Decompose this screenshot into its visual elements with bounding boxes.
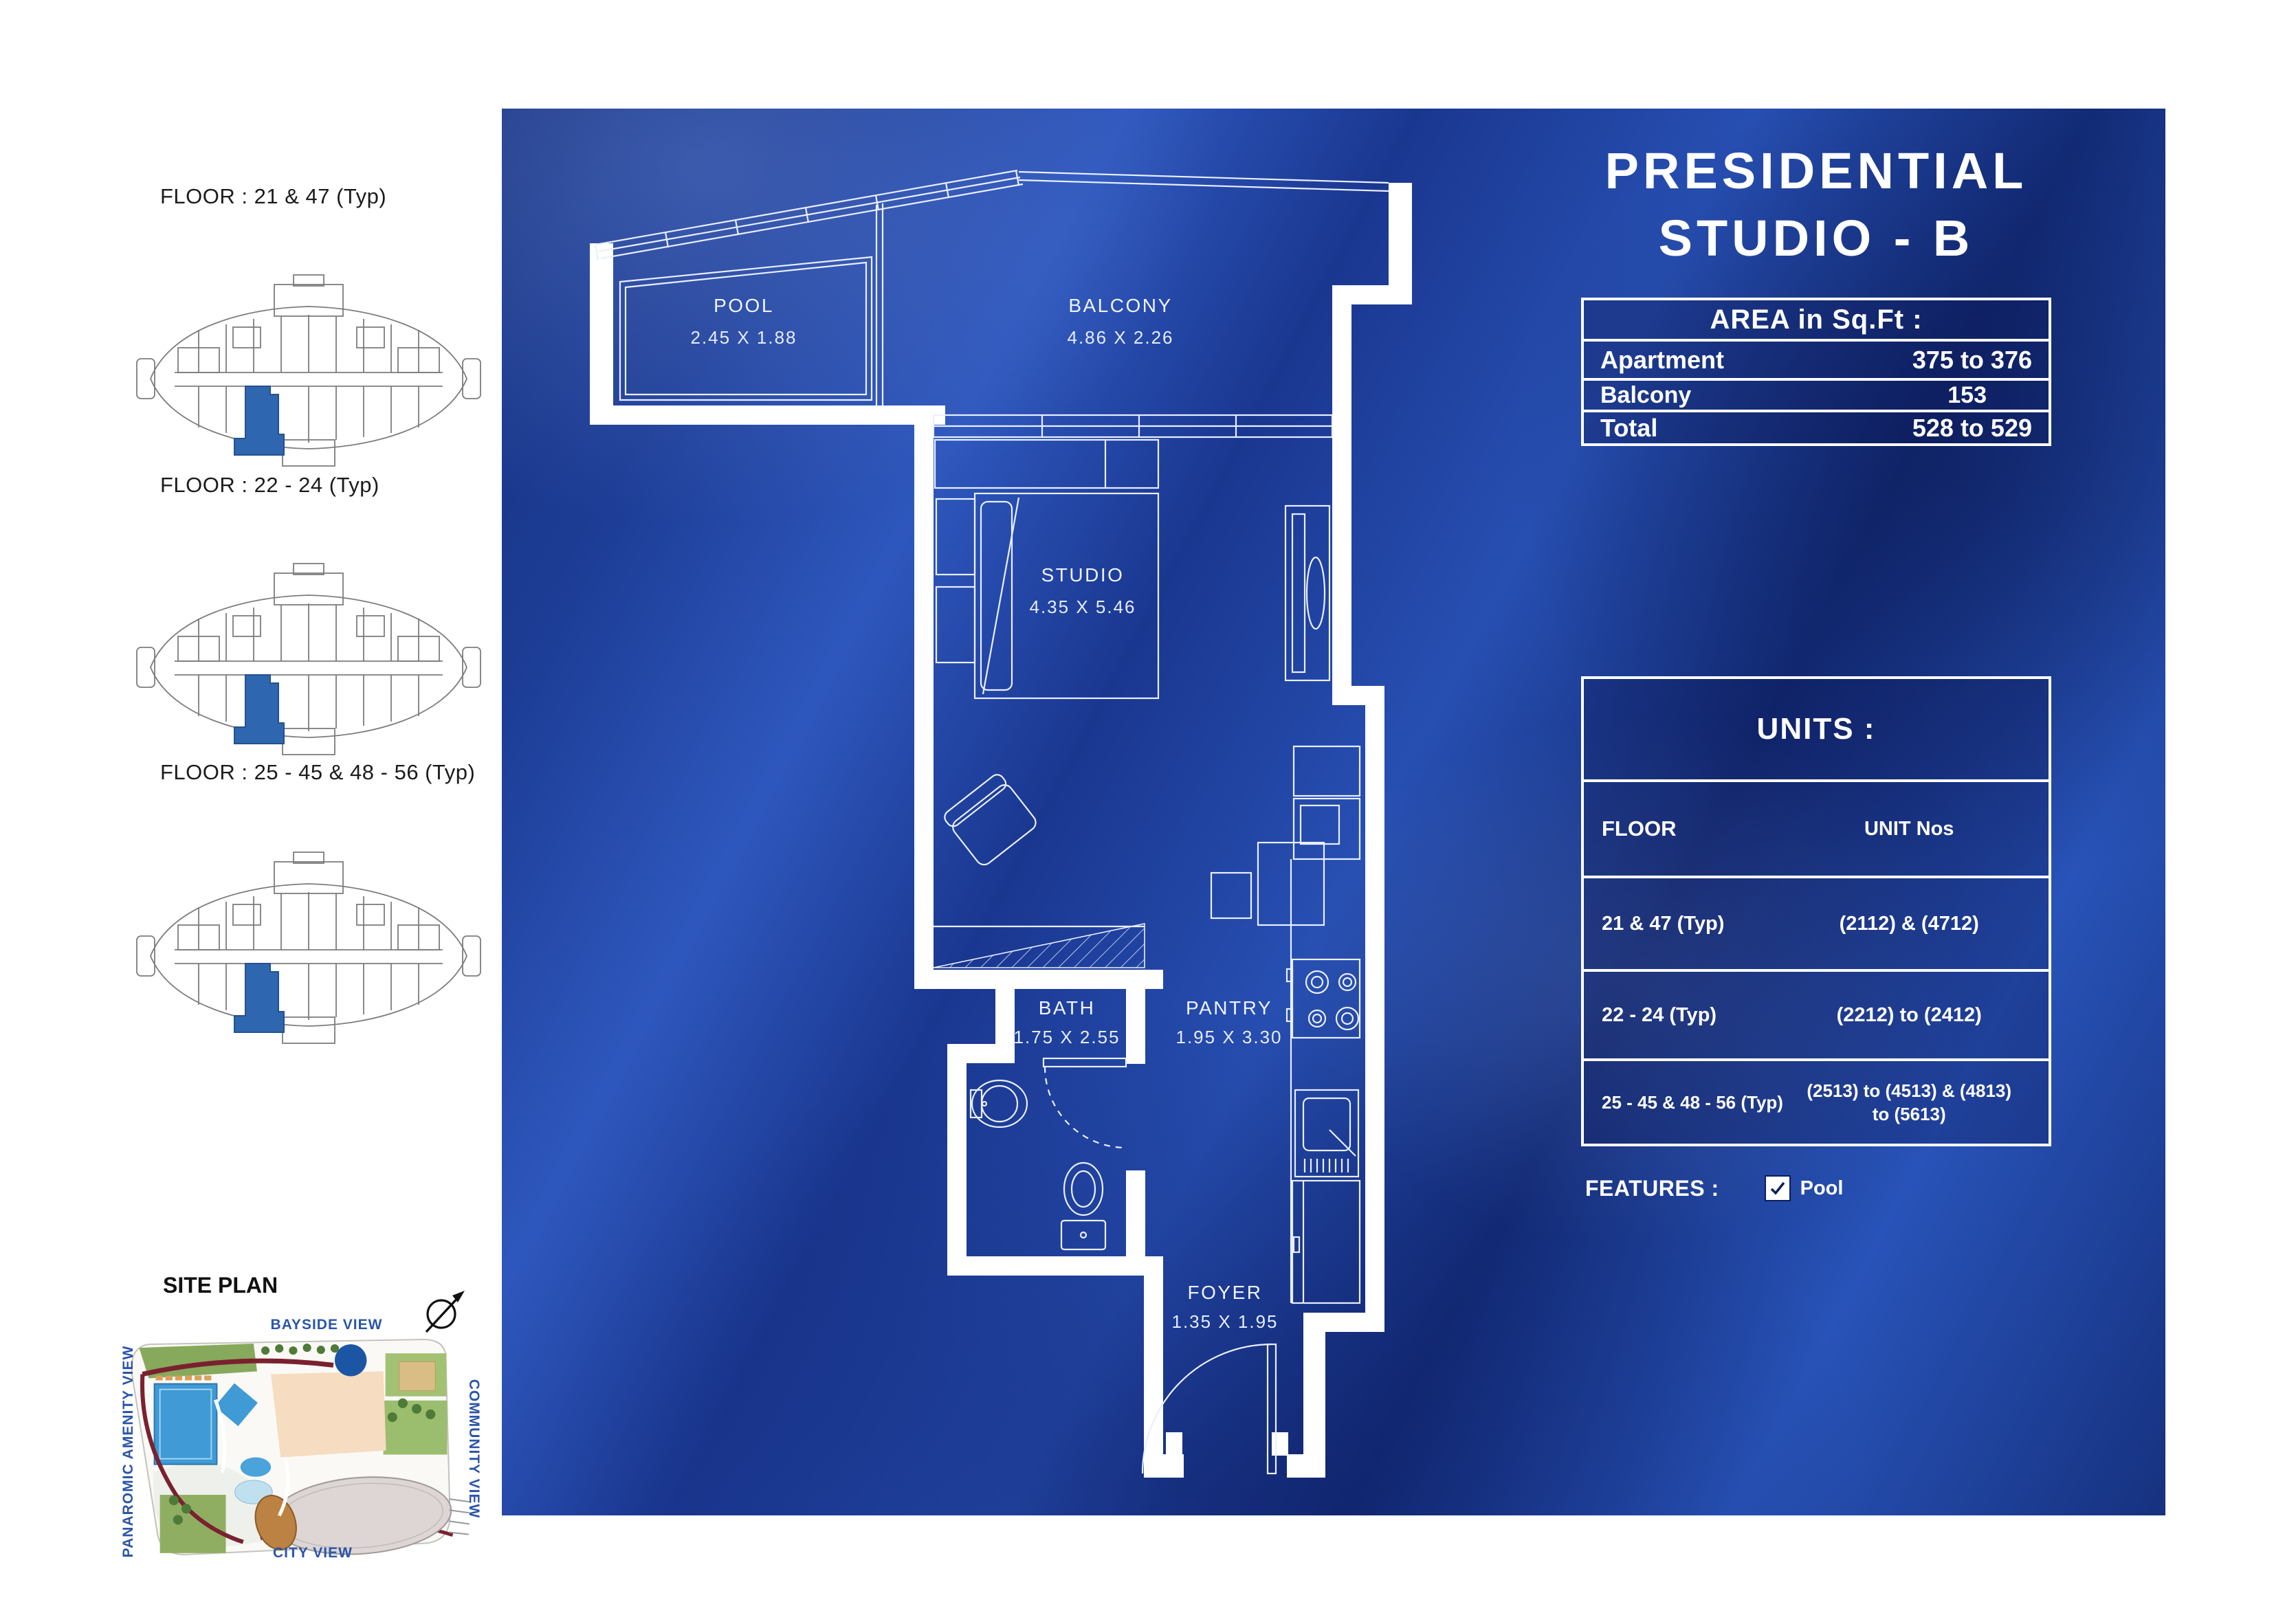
brochure-page: FLOOR : 21 & 47 (Typ) FLOOR : 22 - 24 (T…: [0, 0, 2274, 1624]
area-row-apartment: Apartment 375 to 376: [1584, 339, 2049, 378]
armchair: [942, 772, 1039, 868]
area-row-balcony: Balcony 153: [1584, 378, 2049, 410]
stove: [1287, 959, 1360, 1038]
area-table-header: AREA in Sq.Ft :: [1584, 300, 2049, 339]
bath-sink: [971, 1080, 1027, 1127]
area-row-total: Total 528 to 529: [1584, 410, 2049, 443]
room-label-foyer: FOYER: [1188, 1282, 1263, 1303]
pool-railing: [595, 170, 1023, 260]
wardrobe: [1285, 506, 1329, 680]
room-label-studio: STUDIO: [1041, 564, 1125, 586]
feature-pool: Pool: [1765, 1175, 1844, 1201]
area-table: AREA in Sq.Ft : Apartment 375 to 376 Bal…: [1581, 298, 2051, 446]
hatched-void: [934, 924, 1145, 968]
view-label-panaromic: PANAROMIC AMENITY VIEW: [120, 1346, 137, 1558]
room-label-pantry: PANTRY: [1186, 997, 1272, 1019]
blueprint-panel: POOL 2.45 X 1.88 BALCONY 4.86 X 2.26 STU…: [502, 109, 2165, 1515]
view-label-community: COMMUNITY VIEW: [465, 1379, 482, 1519]
stool: [1211, 873, 1251, 918]
units-row-3: 25 - 45 & 48 - 56 (Typ) (2513) to (4513)…: [1584, 1058, 2049, 1144]
site-plan-title: SITE PLAN: [163, 1273, 278, 1298]
units-row-1: 21 & 47 (Typ) (2112) & (4712): [1584, 876, 2049, 969]
units-row-2: 22 - 24 (Typ) (2212) to (2412): [1584, 969, 2049, 1058]
floor-key-label-1: FLOOR : 21 & 47 (Typ): [160, 184, 386, 209]
units-table-column-headers: FLOOR UNIT Nos: [1584, 779, 2049, 876]
floor-key-label-2: FLOOR : 22 - 24 (Typ): [160, 473, 379, 498]
room-dims-pool: 2.45 X 1.88: [691, 327, 797, 348]
room-label-pool: POOL: [714, 295, 774, 316]
page-title-line2: STUDIO - B: [1581, 205, 2051, 272]
room-dims-pantry: 1.95 X 3.30: [1176, 1027, 1283, 1047]
room-dims-studio: 4.35 X 5.46: [1030, 597, 1136, 617]
features-row: FEATURES : Pool: [1585, 1175, 1843, 1201]
page-title: PRESIDENTIAL STUDIO - B: [1581, 137, 2051, 272]
feature-pool-label: Pool: [1800, 1177, 1844, 1200]
bed: [936, 493, 1158, 698]
floor-key-plan-3: [129, 822, 488, 1097]
features-label: FEATURES :: [1585, 1176, 1719, 1201]
room-dims-balcony: 4.86 X 2.26: [1068, 327, 1174, 348]
units-table: UNITS : FLOOR UNIT Nos 21 & 47 (Typ) (21…: [1581, 676, 2051, 1146]
studio-windows: [934, 415, 1332, 437]
room-label-bath: BATH: [1039, 997, 1096, 1019]
page-title-line1: PRESIDENTIAL: [1581, 137, 2051, 205]
outer-walls: [590, 183, 1412, 1478]
kitchen-counter: [1291, 746, 1360, 1303]
balcony-top-wall: [1019, 172, 1389, 191]
closet-strip: [935, 440, 1158, 488]
pool-checkbox-icon: [1765, 1175, 1791, 1201]
view-label-city: CITY VIEW: [273, 1545, 353, 1561]
room-dims-bath: 1.75 X 2.55: [1014, 1027, 1121, 1047]
kitchen-sink: [1295, 1090, 1358, 1177]
room-dims-foyer: 1.35 X 1.95: [1172, 1311, 1279, 1332]
toilet: [1061, 1163, 1105, 1249]
bath-door: [1044, 1058, 1126, 1148]
site-plan-map: [111, 1333, 486, 1574]
room-label-balcony: BALCONY: [1068, 295, 1172, 316]
pool-divider-wall: [876, 203, 883, 405]
units-table-header: UNITS :: [1584, 679, 2049, 779]
compass-icon: [412, 1280, 474, 1342]
view-label-bayside: BAYSIDE VIEW: [271, 1317, 383, 1333]
floor-key-label-3: FLOOR : 25 - 45 & 48 - 56 (Typ): [160, 760, 475, 785]
